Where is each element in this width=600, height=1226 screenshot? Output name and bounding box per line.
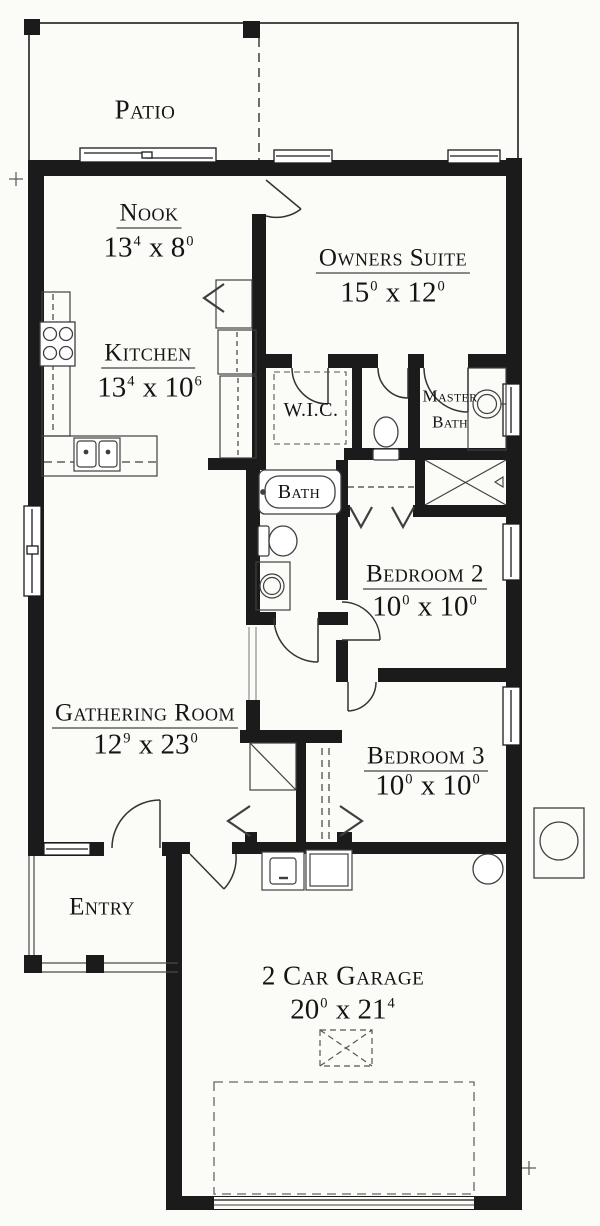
- window-bedroom3: [503, 687, 520, 745]
- door-bedroom3: [348, 682, 376, 711]
- patio-outline: [29, 23, 518, 160]
- garage-dimensions: 200 x 214: [290, 996, 396, 1025]
- walls: [28, 158, 522, 1210]
- ac-condenser-icon: [534, 808, 584, 878]
- bath-label: Bath: [278, 482, 321, 502]
- window-owners-top: [448, 150, 500, 163]
- wic-label: W.I.C.: [283, 400, 338, 420]
- owners-suite-dimensions: 150 x 120: [340, 279, 446, 308]
- water-heater-icon: [473, 854, 503, 884]
- kitchen-label: Kitchen: [101, 341, 195, 366]
- linen-closet: [228, 743, 296, 836]
- door-owners-suite: [266, 180, 301, 217]
- porch-columns-patio: [24, 19, 260, 38]
- master-shower-icon: [416, 459, 506, 505]
- hall-toilet-icon: [258, 526, 297, 556]
- porch-columns-entry: [24, 955, 104, 973]
- cased-opening-hall: [249, 627, 256, 700]
- window-bedroom2: [503, 524, 520, 580]
- window-gathering-left: [24, 506, 41, 596]
- bedroom3-closet: [322, 748, 362, 840]
- range-burners-icon: [40, 322, 75, 366]
- door-garage-entry: [190, 854, 236, 889]
- master-bath-label-line2: Bath: [432, 414, 468, 431]
- bedroom2-label: Bedroom 2: [363, 562, 487, 587]
- hall-vanity-sink-icon: [256, 562, 290, 610]
- garage-apron-outline: [214, 1082, 474, 1194]
- door-water-closet: [378, 368, 408, 398]
- bedroom2-closet: [348, 487, 414, 527]
- sliding-glass-door: [80, 148, 216, 162]
- attic-access-icon: [320, 1030, 372, 1066]
- nook-dimensions: 134 x 80: [104, 234, 195, 263]
- pantry-cabinets: [218, 330, 256, 458]
- washer-icon: [262, 852, 304, 890]
- door-hall-bath: [274, 618, 318, 662]
- door-front-entry: [112, 800, 160, 848]
- master-vanity-sink-icon: [468, 368, 506, 450]
- master-bath-label-line1: Master: [423, 388, 478, 405]
- garage-door: [214, 1197, 474, 1209]
- owners-suite-label: Owners Suite: [316, 246, 470, 271]
- window-nook-top: [274, 150, 332, 163]
- bedroom2-dimensions: 100 x 100: [372, 593, 478, 622]
- window-front: [44, 843, 90, 855]
- kitchen-sink-icon: [74, 438, 120, 471]
- plus-mark-left: [9, 172, 23, 186]
- entry-label: Entry: [69, 895, 135, 920]
- plus-mark-right: [522, 1161, 536, 1175]
- bedroom3-dimensions: 100 x 100: [375, 772, 481, 801]
- gathering-room-label: Gathering Room: [52, 701, 238, 726]
- nook-closet: [204, 280, 252, 328]
- patio-label: Patio: [115, 97, 176, 124]
- kitchen-dimensions: 134 x 106: [97, 374, 203, 403]
- water-closet-toilet-icon: [373, 417, 399, 460]
- floor-plan-drawing: [0, 0, 600, 1226]
- bedroom3-label: Bedroom 3: [364, 744, 488, 769]
- dryer-icon: [306, 850, 352, 890]
- floor-plan-page: Patio Nook 134 x 80 Owners Suite 150 x 1…: [0, 0, 600, 1226]
- garage-label: 2 Car Garage: [262, 963, 424, 990]
- nook-label: Nook: [116, 201, 181, 226]
- gathering-room-dimensions: 129 x 230: [93, 731, 199, 760]
